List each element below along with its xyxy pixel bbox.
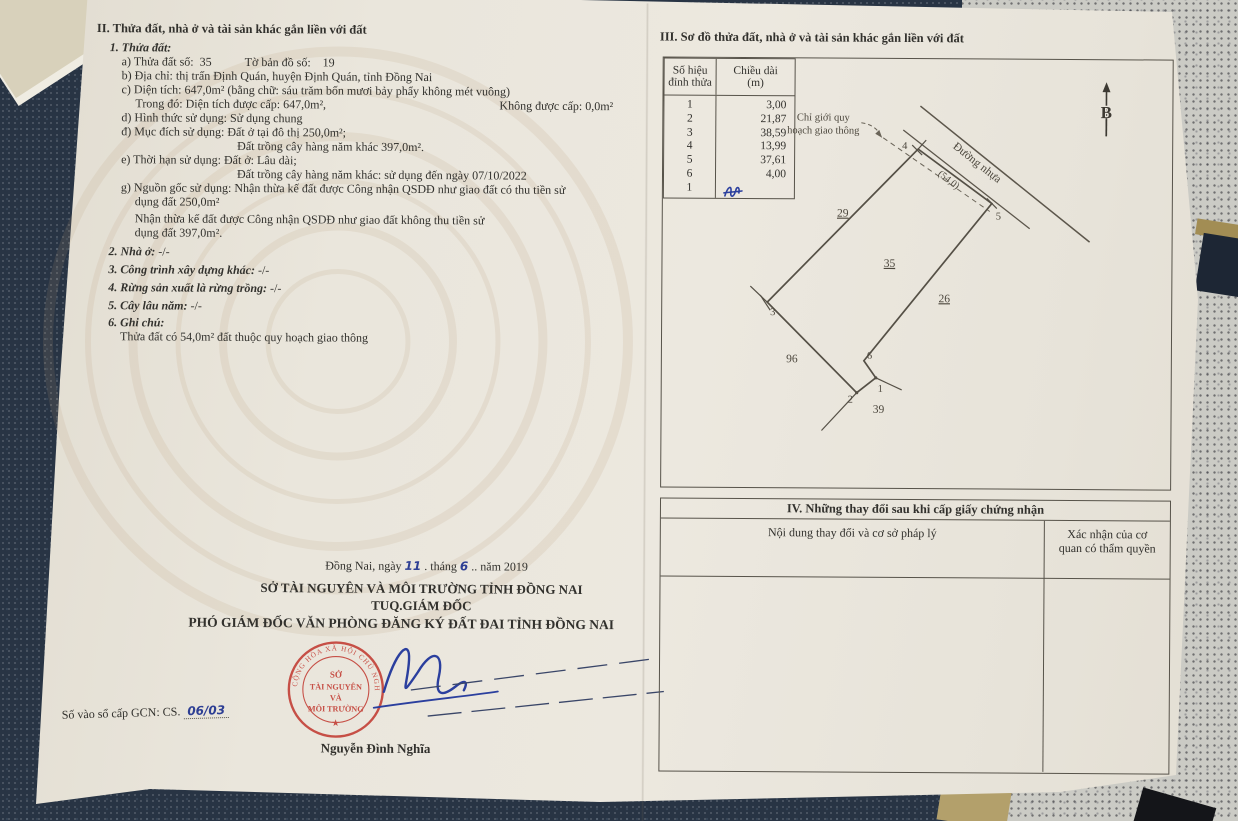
date-mid: . tháng (424, 559, 457, 573)
blue-ink-mark (722, 182, 744, 202)
neighbor-parcel-39: 39 (873, 404, 885, 416)
certificate-content: II. Thửa đất, nhà ở và tài sản khác gắn … (0, 0, 1238, 821)
section3-title: III. Sơ đồ thửa đất, nhà ở và tài sản kh… (660, 30, 964, 45)
neighbor-parcel-26: 26 (938, 293, 950, 305)
perennial-value: -/- (190, 299, 201, 313)
line-origin-4: dụng đất 397,0m². (135, 226, 223, 240)
section2-sub1-title: 1. Thửa đất: (110, 41, 172, 54)
vertex-1-label: 1 (878, 384, 883, 395)
line-origin-2: dụng đất 250,0m² (135, 195, 220, 209)
perennial-label: 5. Cây lâu năm: (108, 298, 187, 312)
parcel-number-value: 35 (200, 56, 212, 69)
blue-ink-signature (356, 630, 677, 737)
line-forest: 4. Rừng sản xuất là rừng trồng: -/- (108, 281, 281, 295)
line-use-form: d) Hình thức sử dụng: Sử dụng chung (121, 111, 302, 125)
stamp-line-3: VÀ (330, 692, 342, 702)
vertex-4-label: 4 (902, 141, 908, 152)
vertex-1-dot (874, 376, 877, 379)
section4-col2-header-line1: Xác nhận của cơ (1045, 527, 1170, 542)
line-use-purpose-2: Đất trồng cây hàng năm khác 397,0m². (237, 140, 424, 154)
parcel-numbers: 29 35 26 96 39 (786, 207, 951, 416)
date-line: Đồng Nai, ngày 11 . tháng 6 .. năm 2019 (227, 559, 627, 574)
house-label: 2. Nhà ở: (108, 244, 155, 258)
subject-parcel-35: 35 (884, 258, 896, 270)
gcn-register-line: Số vào sổ cấp GCN: CS. 06/03 (62, 704, 230, 722)
section4-col1-header: Nội dung thay đổi và cơ sở pháp lý (661, 518, 1044, 540)
section4-change-column: Nội dung thay đổi và cơ sở pháp lý (659, 518, 1045, 771)
neighbor-parcel-96: 96 (786, 353, 798, 365)
length-column: 3,00 21,87 38,59 13,99 37,61 4,00 (716, 96, 795, 198)
date-prefix: Đồng Nai, ngày (325, 558, 401, 572)
table-row-length: 4,00 (716, 168, 794, 182)
section4-col2-header-line2: quan có thẩm quyền (1045, 541, 1170, 556)
north-arrow-icon: B (1101, 82, 1113, 136)
table-row-length: 37,61 (716, 154, 794, 168)
gcn-label: Số vào sổ cấp GCN: CS. (62, 704, 181, 721)
notes-label: 6. Ghi chú: (108, 316, 164, 329)
handwritten-month: 6 (460, 559, 468, 573)
vertex-3-label: 3 (770, 307, 775, 318)
cadastral-diagram-box: B Đường nhựa Chỉ giới quy hoạch giao thô… (660, 56, 1174, 490)
section2-title: II. Thửa đất, nhà ở và tài sản khác gắn … (97, 22, 367, 37)
vertex-5-label: 5 (996, 212, 1001, 223)
section4-box: IV. Những thay đổi sau khi cấp giấy chứn… (658, 497, 1171, 774)
planning-label-line1: Chỉ giới quy (797, 112, 851, 123)
planning-leader-arrowhead (875, 130, 882, 138)
section4-col2-header: Xác nhận của cơ quan có thẩm quyền (1045, 521, 1170, 556)
line-perennial: 5. Cây lâu năm: -/- (108, 299, 202, 313)
parcel-number-label: a) Thửa đất số: (122, 55, 194, 68)
map-sheet-value: 19 (323, 56, 335, 69)
vertex-2-label: 2 (848, 395, 853, 406)
table-row-length: 3,00 (716, 99, 794, 113)
table-row-length: 38,59 (716, 126, 794, 140)
line-use-term: e) Thời hạn sử dụng: Đất ở: Lâu dài; (121, 153, 297, 167)
line-use-purpose: đ) Mục đích sử dụng: Đất ở tại đô thị 25… (121, 125, 346, 139)
table-row-length: 13,99 (716, 140, 794, 154)
stamp-line-1: SỞ (330, 669, 343, 679)
line-house: 2. Nhà ở: -/- (108, 245, 169, 258)
forest-value: -/- (270, 281, 281, 295)
stamp-line-2: TÀI NGUYÊN (310, 681, 362, 691)
date-suffix: .. năm 2019 (471, 559, 528, 573)
vertex-2-dot (855, 391, 858, 394)
svg-text:★: ★ (332, 718, 340, 727)
planning-label-line2: hoạch giao thông (787, 125, 860, 136)
constructions-label: 3. Công trình xây dựng khác: (108, 262, 255, 277)
vertex-6-label: 6 (867, 351, 872, 362)
area-not-granted: Không được cấp: 0,0m² (499, 100, 613, 114)
map-sheet-label: Tờ bản đồ số: (245, 56, 311, 69)
notes-content: Thửa đất có 54,0m² đất thuộc quy hoạch g… (120, 330, 368, 345)
constructions-value: -/- (258, 263, 269, 277)
signer-name: Nguyễn Đình Nghĩa (235, 741, 515, 756)
house-value: -/- (158, 244, 169, 258)
neighbor-parcel-29: 29 (837, 208, 849, 220)
handwritten-day: 11 (405, 559, 422, 573)
photo-of-land-certificate: II. Thửa đất, nhà ở và tài sản khác gắn … (0, 0, 1238, 821)
area-granted: Trong đó: Diện tích được cấp: 647,0m², (135, 97, 326, 111)
table-row-length: 21,87 (716, 113, 794, 127)
line-constructions: 3. Công trình xây dựng khác: -/- (108, 263, 269, 277)
forest-label: 4. Rừng sản xuất là rừng trồng: (108, 280, 267, 295)
gcn-handwritten-value: 06/03 (183, 703, 229, 719)
section4-confirm-column: Xác nhận của cơ quan có thẩm quyền (1043, 521, 1170, 773)
